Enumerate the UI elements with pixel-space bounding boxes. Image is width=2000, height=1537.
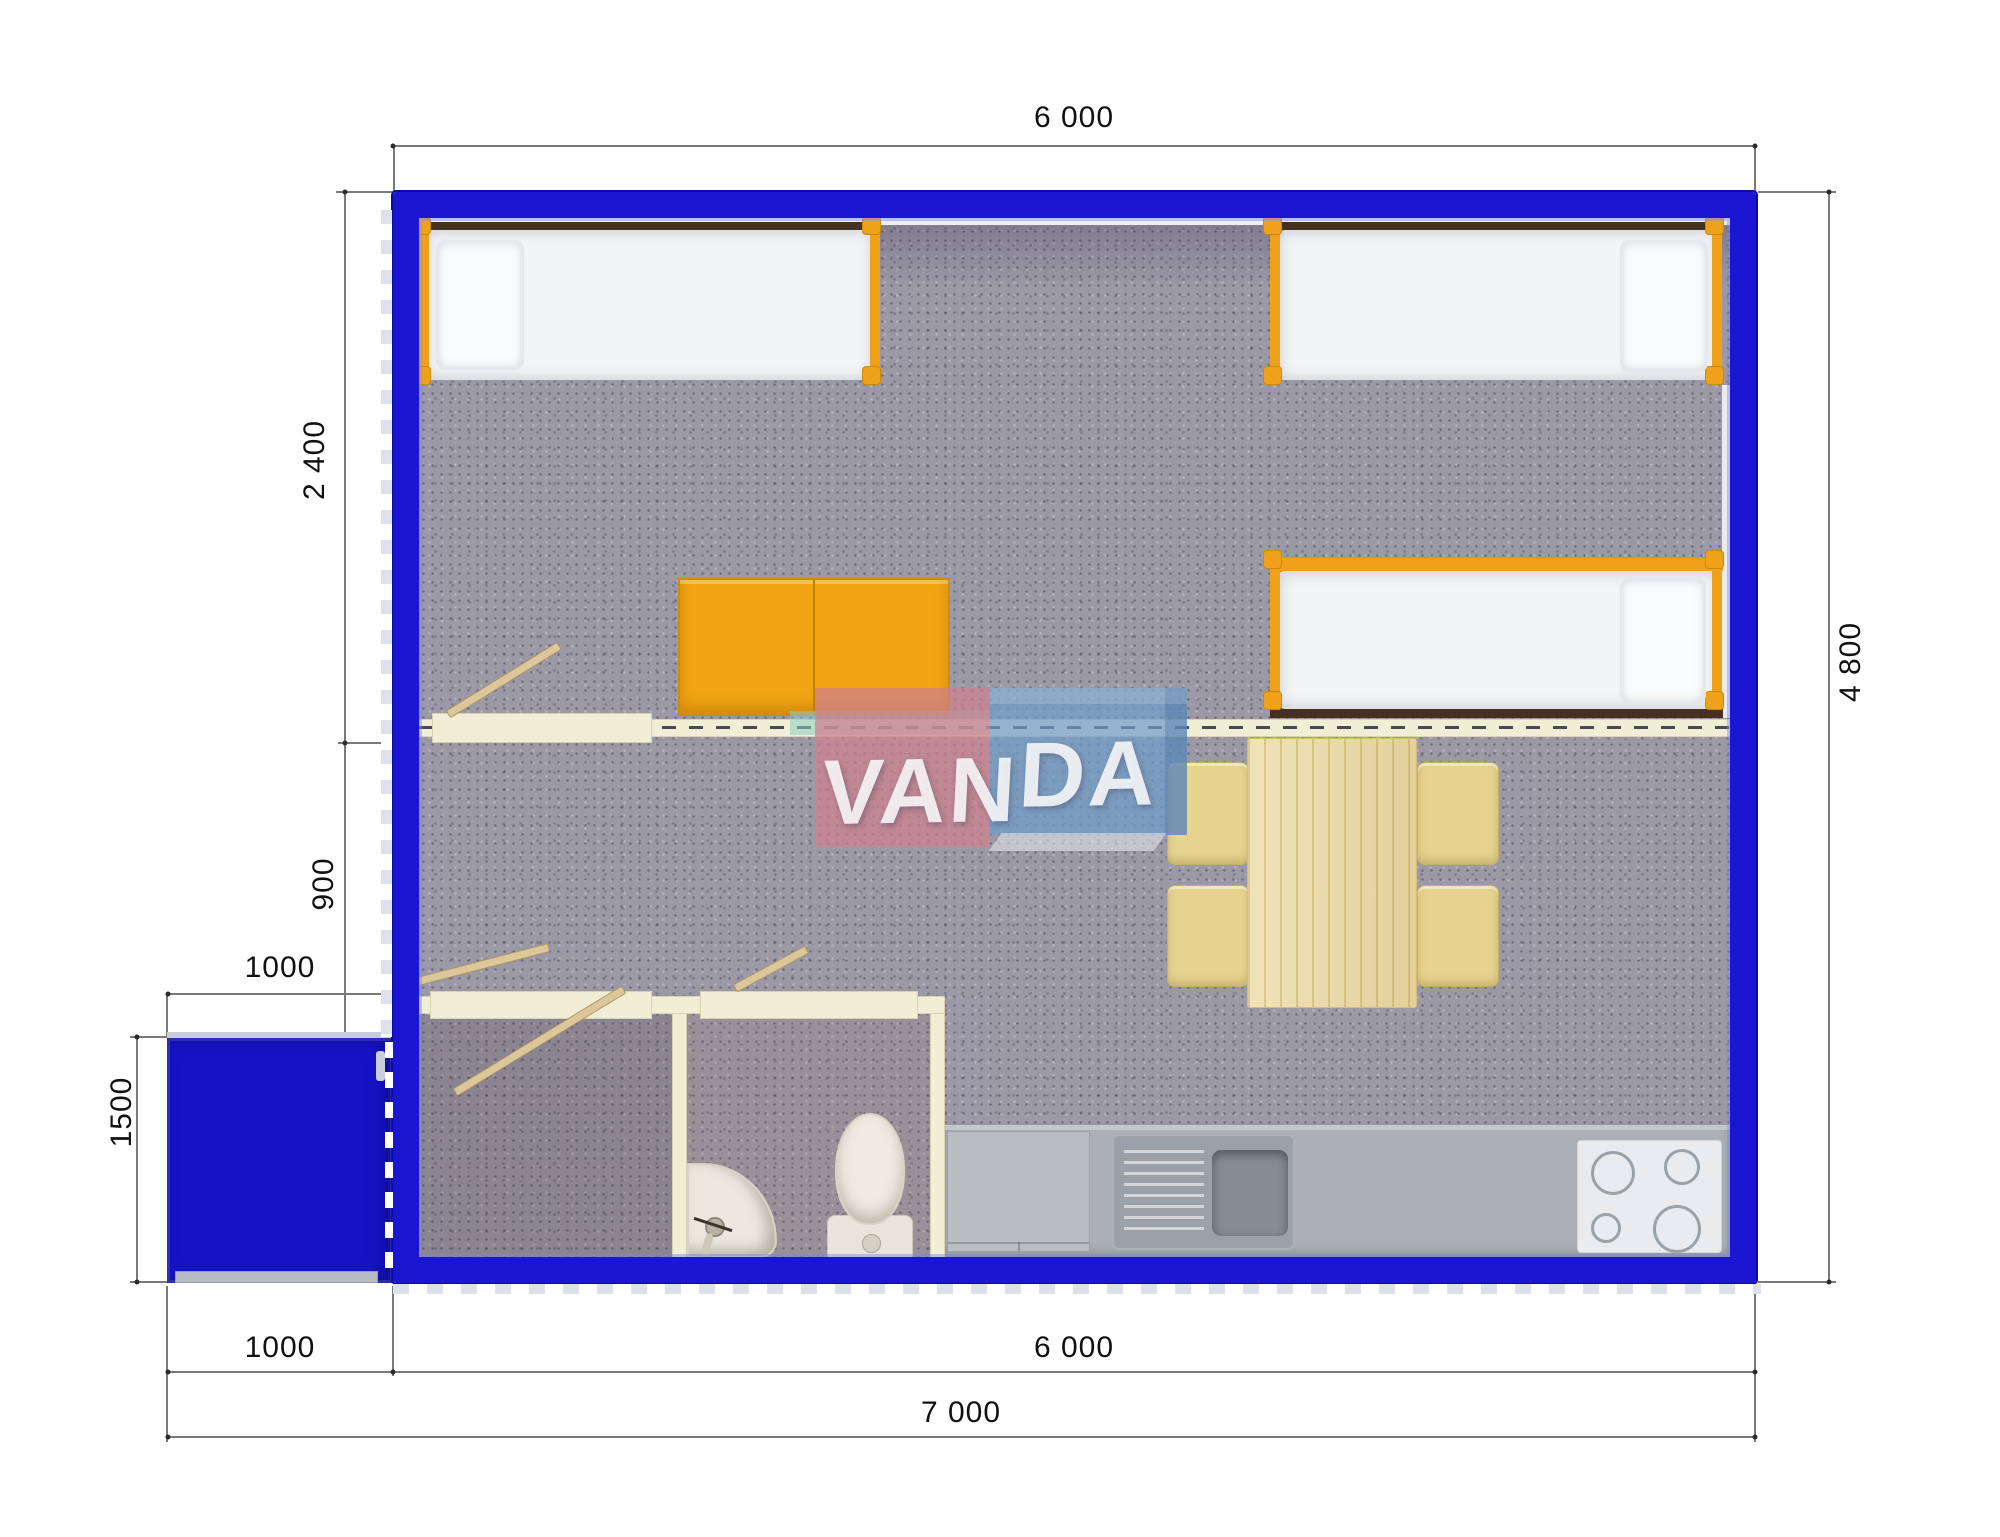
outer-dash-strip-left: [381, 210, 392, 1037]
dim-ext: [1754, 1286, 1756, 1442]
watermark-text-van: VAN: [819, 738, 1021, 847]
dim-ext: [166, 996, 168, 1036]
porch-step: [175, 1271, 378, 1283]
porch: [167, 1038, 393, 1283]
outer-dash-strip-bottom: [393, 1284, 1761, 1294]
dim-line-left: [344, 192, 346, 1037]
dim-line-bottom-2: [167, 1436, 1756, 1438]
dim-ext: [1758, 191, 1836, 193]
dim-line-porch-height: [136, 1037, 138, 1283]
dim-label-right-height: 4 800: [1834, 622, 1868, 702]
dim-ext: [1754, 145, 1756, 192]
dim-line-bottom-1: [167, 1371, 1756, 1373]
door-handle: [376, 1051, 385, 1081]
dim-label-bottom-total: 7 000: [921, 1396, 1001, 1430]
dim-ext: [393, 145, 395, 192]
dim-label-bottom-left: 1000: [245, 1331, 316, 1365]
dim-label-porch-height: 1500: [105, 1077, 139, 1148]
dim-ext: [1758, 1281, 1836, 1283]
dim-ext: [392, 1286, 394, 1376]
dim-ext: [166, 1286, 168, 1442]
dim-label-porch-width: 1000: [245, 951, 316, 985]
watermark-text-da: DA: [1016, 721, 1160, 829]
dim-label-bottom-main: 6 000: [1034, 1331, 1114, 1365]
dim-line-top: [393, 145, 1756, 147]
floor-plan-canvas: 6 000 2 400 900 1000 1500 4 800 1000 6 0…: [0, 0, 2000, 1537]
dim-label-left-middle: 900: [307, 857, 341, 910]
porch-door-dashed: [385, 1042, 393, 1278]
dim-label-left-upper: 2 400: [298, 420, 332, 500]
dim-line-right: [1828, 192, 1830, 1283]
dim-label-top-width: 6 000: [1034, 101, 1114, 135]
dim-line-porch-width: [167, 993, 394, 995]
vanda-watermark: VANDA: [819, 730, 1185, 851]
